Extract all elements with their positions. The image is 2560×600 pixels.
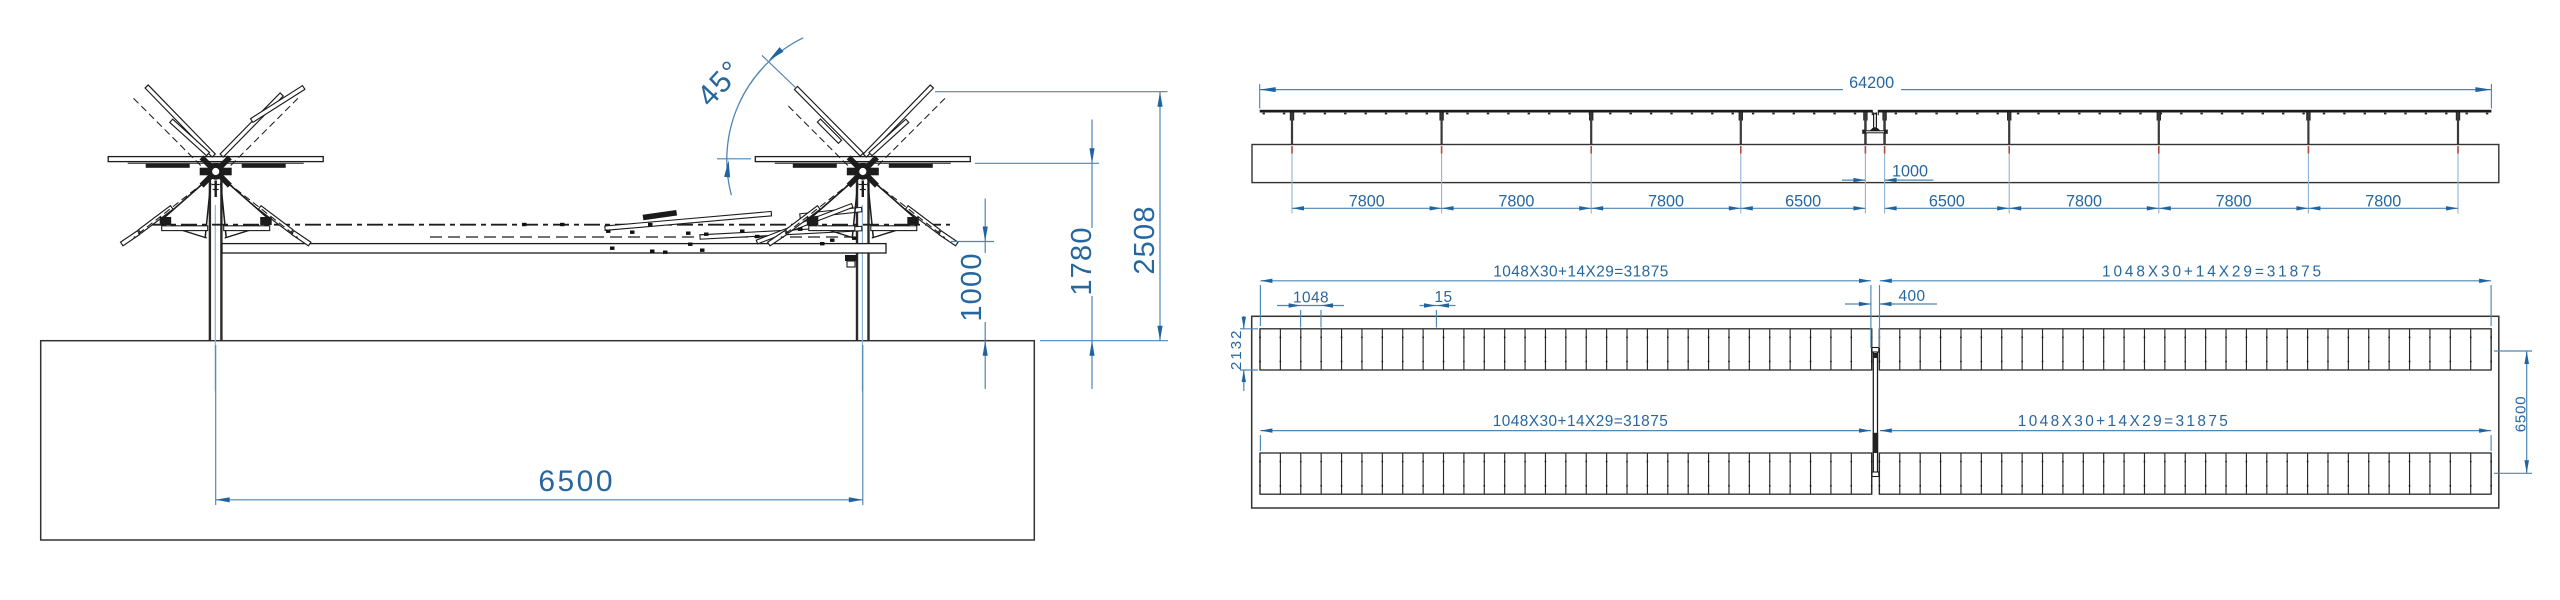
svg-text:2132: 2132 xyxy=(1228,329,1245,370)
svg-text:6500: 6500 xyxy=(2513,396,2530,433)
svg-text:15: 15 xyxy=(1434,289,1452,306)
svg-text:6500: 6500 xyxy=(1929,192,1965,210)
svg-text:1048X30+14X29=31875: 1048X30+14X29=31875 xyxy=(2018,413,2231,430)
svg-text:1048: 1048 xyxy=(1293,290,1329,307)
svg-text:7800: 7800 xyxy=(1498,192,1534,210)
svg-text:1048X30+14X29=31875: 1048X30+14X29=31875 xyxy=(1493,264,1668,281)
svg-text:2508: 2508 xyxy=(1129,205,1161,274)
svg-text:6500: 6500 xyxy=(538,465,615,498)
svg-text:1000: 1000 xyxy=(1892,163,1928,181)
svg-text:1048X30+14X29=31875: 1048X30+14X29=31875 xyxy=(1493,413,1668,430)
svg-text:6500: 6500 xyxy=(1785,192,1821,210)
svg-text:7800: 7800 xyxy=(1648,192,1684,210)
svg-text:7800: 7800 xyxy=(1349,192,1385,210)
svg-text:64200: 64200 xyxy=(1849,74,1894,92)
svg-text:1780: 1780 xyxy=(1066,226,1098,295)
svg-text:7800: 7800 xyxy=(2216,192,2252,210)
svg-text:7800: 7800 xyxy=(2066,192,2102,210)
svg-text:1048X30+14X29=31875: 1048X30+14X29=31875 xyxy=(2102,264,2324,281)
svg-text:400: 400 xyxy=(1898,288,1925,305)
svg-text:7800: 7800 xyxy=(2365,192,2401,210)
svg-text:1000: 1000 xyxy=(956,252,988,321)
